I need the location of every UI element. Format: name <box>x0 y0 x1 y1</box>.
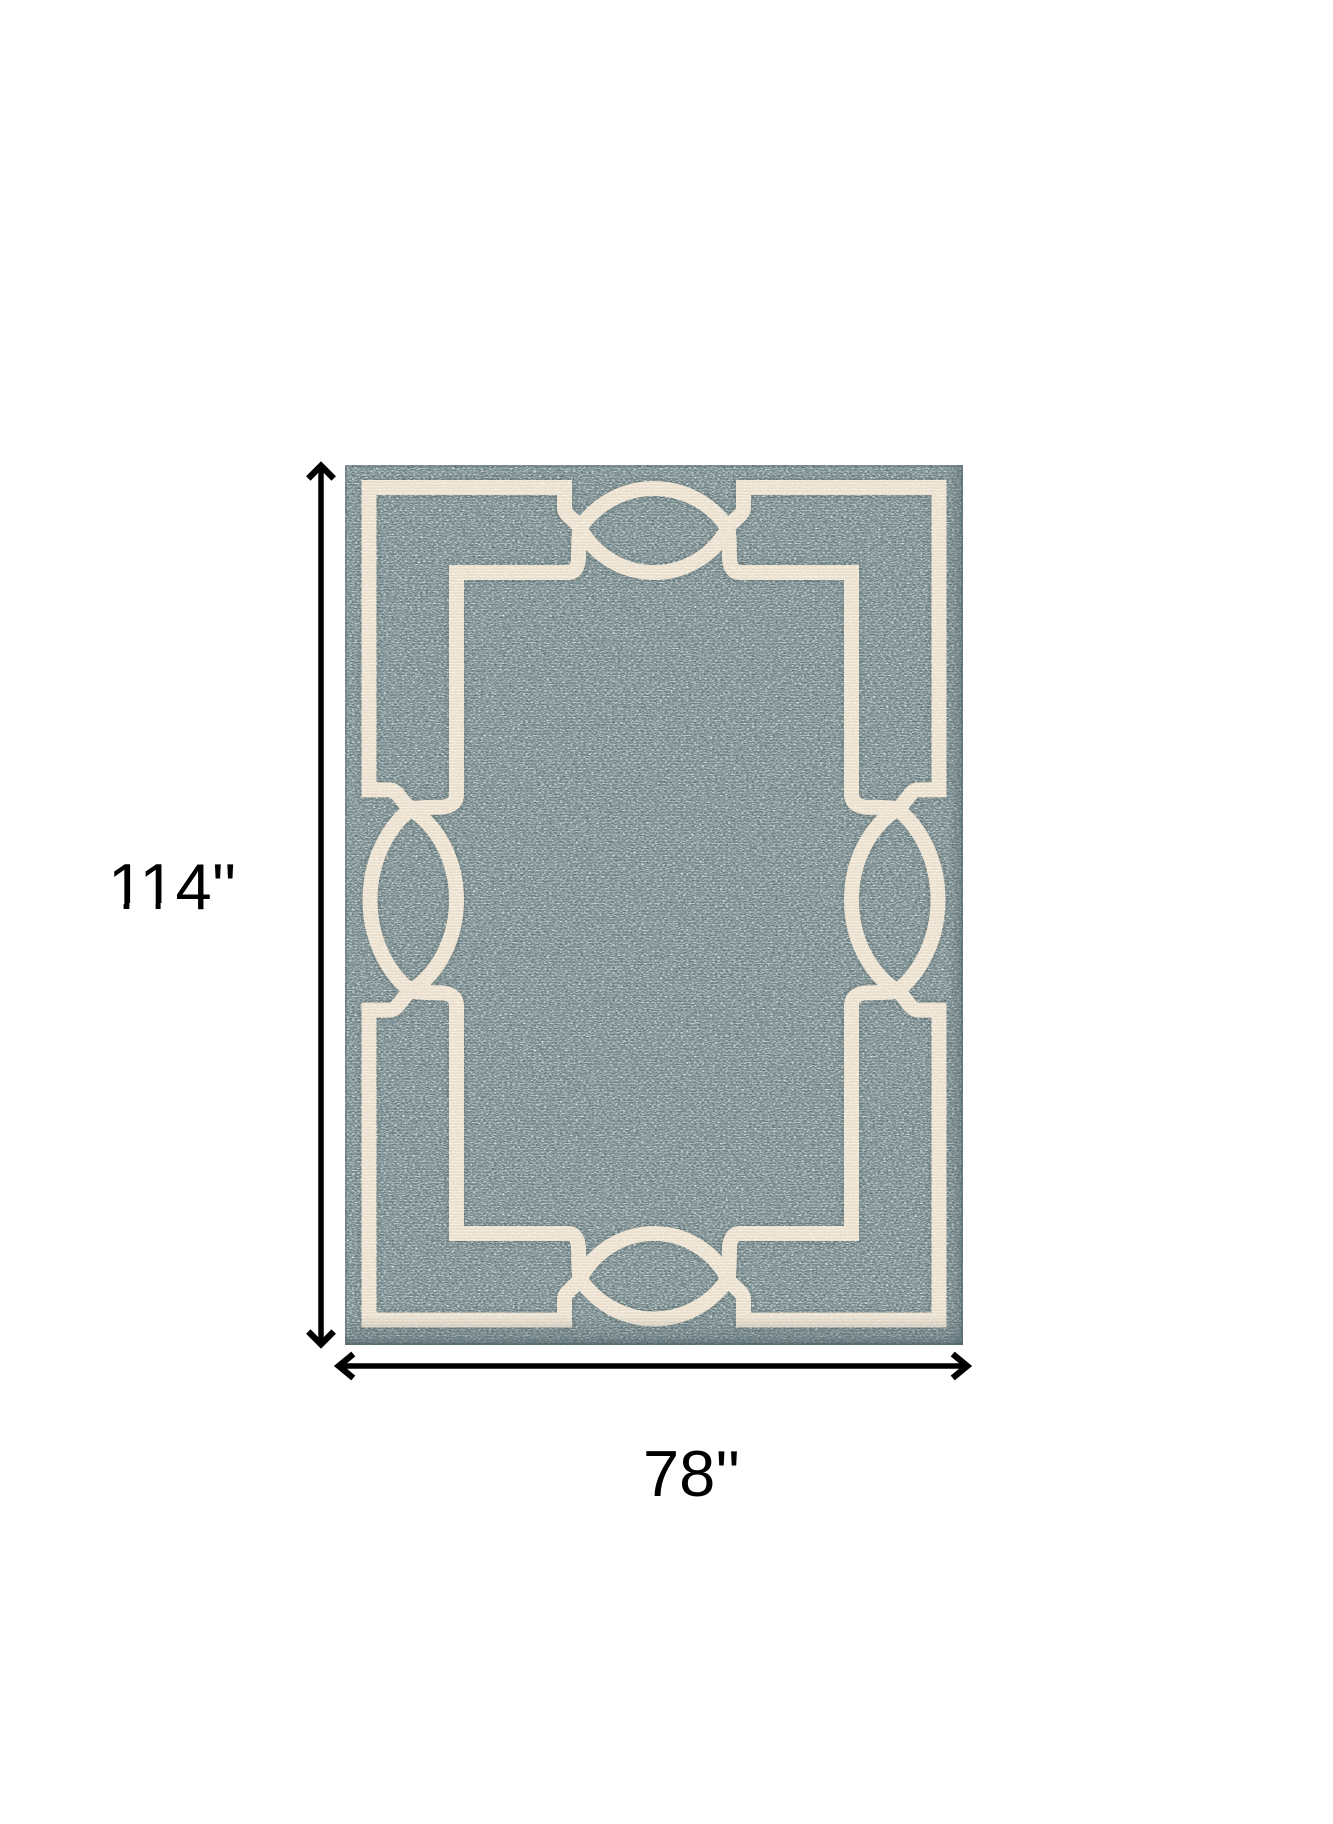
svg-text:114'': 114'' <box>108 850 236 923</box>
svg-text:78'': 78'' <box>643 1437 740 1510</box>
